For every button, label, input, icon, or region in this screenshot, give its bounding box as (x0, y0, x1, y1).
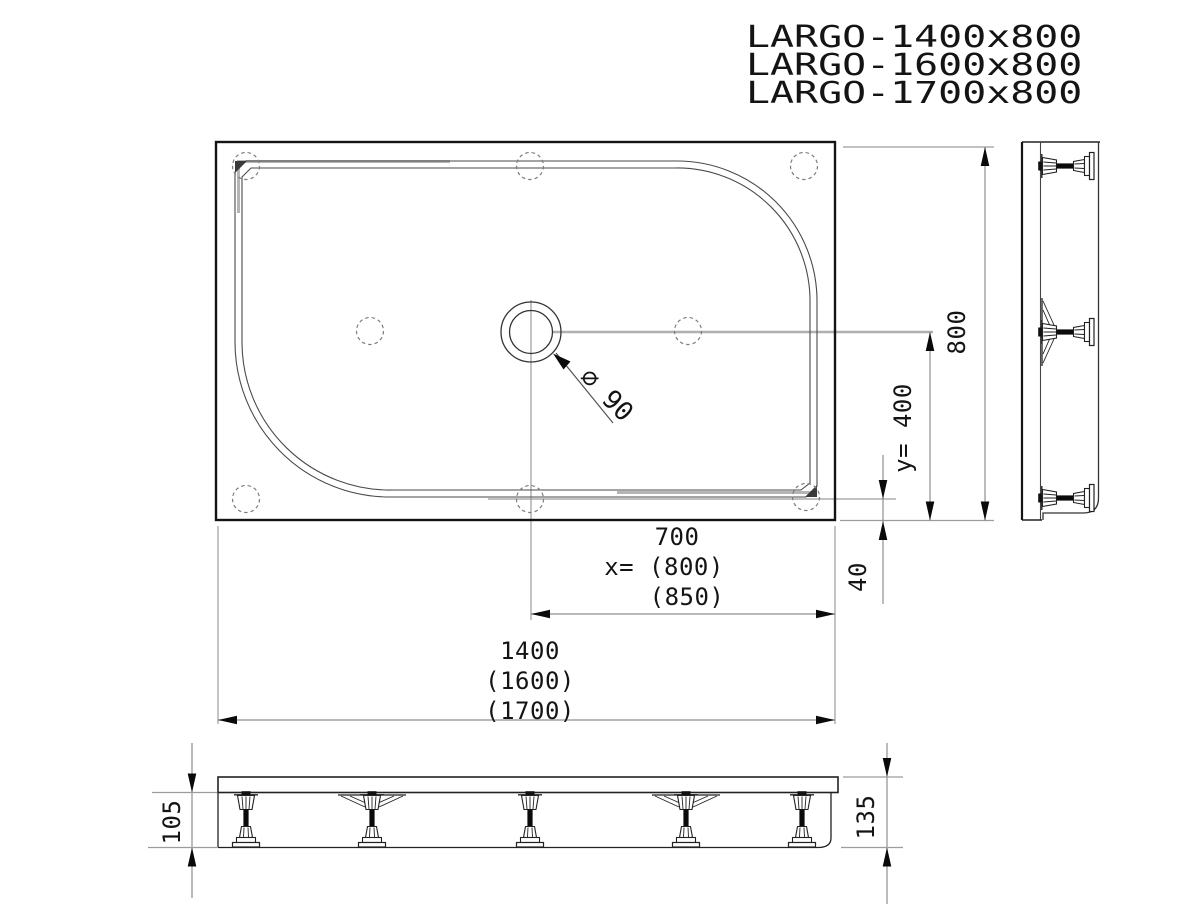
side-foot-middle (1038, 298, 1094, 366)
foot-circle (517, 153, 544, 180)
foot-circle (357, 318, 384, 345)
model-title-3: LARGO-1700x800 (746, 80, 1082, 109)
dimension-arrows (188, 147, 990, 867)
tray-rim-inner (242, 168, 810, 490)
dim-label-135: 135 (852, 767, 880, 867)
plan-view (216, 142, 994, 724)
dim-label-40: 40 (844, 537, 872, 617)
tray-rim-outer (235, 161, 817, 497)
dim-label-1600: (1600) (460, 667, 600, 695)
side-foot-top (1038, 153, 1094, 180)
side-foot-bottom (1038, 485, 1094, 512)
front-foot-3 (517, 791, 544, 847)
front-foot-5 (789, 791, 816, 847)
dim-label-1400: 1400 (460, 637, 600, 665)
dim-label-y400: y= 400 (889, 358, 917, 498)
front-foot-1 (233, 791, 260, 847)
dim-label-x-800: x= (800) (594, 553, 734, 581)
foot-circle (233, 486, 260, 513)
dim-label-x-850: (850) (617, 583, 757, 611)
front-foot-2 (338, 791, 406, 847)
front-tray-slab (218, 777, 838, 793)
dim-label-1700: (1700) (460, 697, 600, 725)
dim-label-105: 105 (158, 772, 186, 872)
technical-drawing-page: LARGO-1400x800 LARGO-1600x800 LARGO-1700… (0, 0, 1200, 920)
plan-centerlines (218, 147, 994, 724)
front-foot-4 (652, 791, 720, 847)
front-view (148, 777, 903, 848)
side-view (1022, 142, 1100, 520)
rim-corner-chamfer-topleft (235, 161, 247, 173)
foot-circle (791, 153, 818, 180)
plan-highlight-lines (237, 161, 814, 493)
dim-label-800: 800 (943, 272, 971, 392)
dim-label-x-700: 700 (607, 523, 747, 551)
